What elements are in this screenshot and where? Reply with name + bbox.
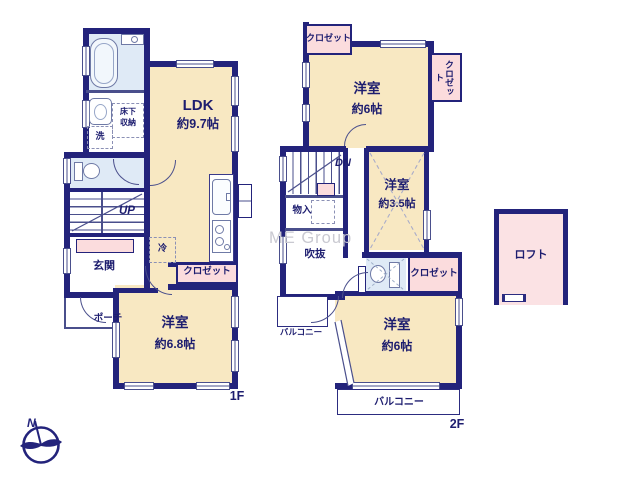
bedroom-2f-bottom-size: 約6帖 xyxy=(366,340,428,353)
balcony-left-label: バルコニー xyxy=(274,328,328,337)
compass-icon: N xyxy=(12,414,70,472)
toilet-2f-tank xyxy=(389,262,400,288)
bathtub-inner xyxy=(94,43,114,84)
burner xyxy=(224,244,230,250)
fridge-label: 冷 xyxy=(149,244,176,254)
window xyxy=(82,46,90,76)
watermark: ME Group xyxy=(269,229,352,248)
window xyxy=(302,104,310,122)
loft-ladder xyxy=(502,294,526,302)
wall xyxy=(168,284,238,290)
bedroom-2f-top-name: 洋室 xyxy=(336,82,398,97)
floor-2f-label: 2F xyxy=(440,418,474,432)
window xyxy=(112,322,120,358)
porch-edge xyxy=(64,327,114,329)
toilet-1f-bowl xyxy=(83,163,100,179)
loft-label: ロフト xyxy=(496,249,566,261)
burner xyxy=(215,225,224,234)
stairs-dn-label: DN xyxy=(330,157,356,169)
stair-divider xyxy=(101,192,103,233)
toilet-2f-bowl xyxy=(370,265,386,283)
window xyxy=(380,40,426,48)
washer-label: 洗 xyxy=(87,132,113,142)
wall xyxy=(86,90,146,93)
bedroom-2f-top-floor xyxy=(305,46,428,148)
kitchen-faucet xyxy=(226,193,231,201)
stairs-up-label: UP xyxy=(112,205,142,218)
closet-2f-mid-label: クロゼット xyxy=(408,269,460,279)
compass-north-label: N xyxy=(27,416,36,430)
window xyxy=(63,158,71,184)
storage-label: 物入 xyxy=(288,206,316,216)
window xyxy=(231,296,239,328)
bedroom-1f-name: 洋室 xyxy=(144,316,206,331)
wall xyxy=(113,288,158,293)
porch-edge xyxy=(64,298,66,329)
bedroom-1f-floor xyxy=(115,285,233,383)
wall xyxy=(64,152,145,158)
bedroom-2f-bottom-name: 洋室 xyxy=(366,318,428,333)
toilet-1f-tank xyxy=(74,162,83,181)
window xyxy=(176,60,214,68)
underfloor-storage-label: 床下 xyxy=(112,108,144,117)
door-arc-hall xyxy=(342,272,368,298)
bedroom-2f-mid-name: 洋室 xyxy=(368,179,426,193)
balcony-bottom-label: バルコニー xyxy=(358,397,440,408)
void-label: 吹抜 xyxy=(293,249,337,261)
wall xyxy=(285,146,346,152)
shoe-cabinet xyxy=(76,239,134,253)
burner xyxy=(215,237,224,246)
underfloor-storage-label2: 収納 xyxy=(112,119,144,128)
ldk-size: 約9.7帖 xyxy=(157,118,239,132)
closet-2f-top-left-label: クロゼット xyxy=(305,34,352,44)
kitchen-door xyxy=(238,184,252,218)
bedroom-2f-top-size: 約6帖 xyxy=(336,103,398,116)
window xyxy=(231,340,239,372)
window xyxy=(302,62,310,88)
wall xyxy=(64,233,145,237)
storage-shelf xyxy=(317,183,335,196)
window xyxy=(455,298,463,326)
window xyxy=(63,248,71,274)
window xyxy=(124,382,154,390)
closet-1f-label: クロゼット xyxy=(176,267,238,277)
window xyxy=(279,156,287,182)
bath-faucet xyxy=(131,36,138,43)
ldk-name: LDK xyxy=(162,98,234,115)
entrance-label: 玄関 xyxy=(80,260,128,272)
floorplan-canvas: クロゼット 床下 収納 洗 冷 LDK 約9.7帖 洋室 約6.8帖 xyxy=(0,0,640,480)
bedroom-2f-mid-size: 約3.5帖 xyxy=(364,198,430,210)
window xyxy=(423,210,431,240)
bedroom-1f-size: 約6.8帖 xyxy=(139,338,211,351)
floor-1f-label: 1F xyxy=(220,390,254,404)
window xyxy=(196,382,230,390)
washbasin-bowl xyxy=(94,104,107,120)
wall xyxy=(64,188,145,192)
closet-2f-right-label: クロゼット xyxy=(439,57,453,98)
porch-label: ポーチ xyxy=(84,314,132,324)
